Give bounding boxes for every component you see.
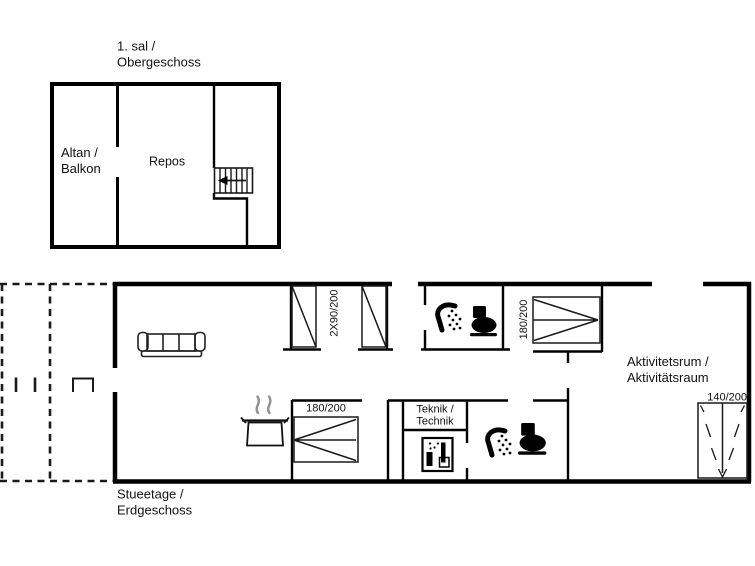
balcony-label-line2: Balkon (61, 161, 101, 176)
upper-floor-title-line2: Obergeschoss (117, 55, 201, 70)
staircase-icon (215, 168, 253, 193)
repos-label: Repos (149, 155, 185, 169)
sofa-icon (138, 333, 205, 357)
double-bed-size-label-1: 180/200 (518, 300, 530, 340)
balcony-label-line1: Altan / (61, 145, 98, 160)
stair-void-wall (214, 193, 247, 247)
floor-plan-drawing: 1. sal / Obergeschoss Altan / Balkon Rep… (0, 0, 755, 566)
terrace-dashed-outline (0, 284, 113, 481)
twin-bed-size-label: 2X90/200 (329, 289, 341, 336)
double-bed-icon (294, 417, 358, 462)
terrace-post-marks (16, 378, 35, 393)
floor-plan-page: 1. sal / Obergeschoss Altan / Balkon Rep… (0, 0, 755, 566)
washing-machine-icon (423, 438, 453, 471)
double-bed-size-label-2: 180/200 (306, 403, 346, 415)
technic-room-label-line1: Teknik / (416, 404, 454, 416)
double-bed-icon (533, 297, 600, 343)
shower-icon (488, 430, 512, 455)
toilet-icon (470, 306, 497, 336)
door-size-label: 140/200 (707, 392, 747, 404)
technic-room-label-line2: Technik (416, 416, 454, 428)
ground-floor-title-line1: Stueetage / (117, 487, 184, 502)
cooking-pot-icon (241, 397, 289, 446)
terrace-step-icon (73, 379, 93, 393)
single-bed-icon (292, 286, 316, 347)
single-bed-icon (362, 286, 386, 347)
activity-room-label-line2: Aktivitätsraum (627, 370, 709, 385)
toilet-icon (518, 423, 546, 455)
ground-floor-title-line2: Erdgeschoss (117, 503, 193, 518)
upper-floor-title-line1: 1. sal / (117, 39, 156, 54)
shower-icon (438, 305, 462, 330)
steam-icon (257, 397, 271, 414)
activity-room-label-line1: Aktivitetsrum / (627, 354, 709, 369)
double-door-icon (698, 403, 747, 478)
